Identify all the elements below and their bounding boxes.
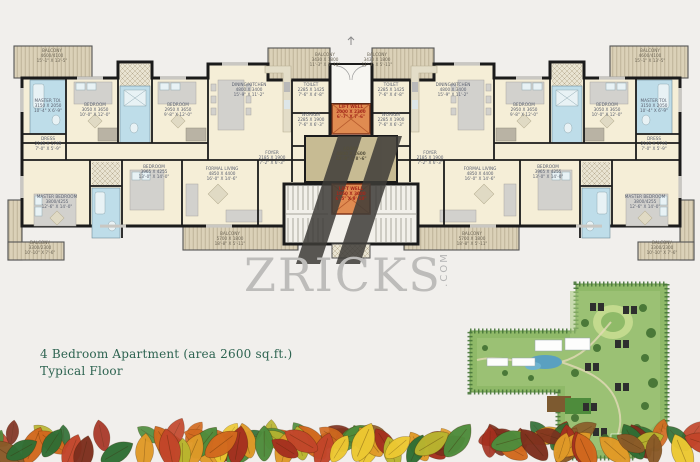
label-balcony-top-center: BALCONY3430 X 180011'-3" X 5'-11" <box>310 52 341 67</box>
label-bedroom-b-r: BEDROOM2950 X 36509'-8" X 12'-0" <box>510 102 538 117</box>
floor-plan: BALCONY4600/410015'-1" X 13'-5" MASTER T… <box>0 36 700 276</box>
label-formal-living-r: FORMAL LIVING4850 X 440016'-0" X 14'-6" <box>464 166 497 181</box>
label-bedroom-a-r: BEDROOM3050 X 365010'-0" X 12'-0" <box>592 102 623 117</box>
leaf-border <box>0 410 700 462</box>
label-bedroom-c: BEDROOM3965 X 425513'-0" X 14'-0" <box>139 164 170 179</box>
watermark-suffix: .COM <box>439 252 450 287</box>
label-master-toilet: MASTER TOI.3150 X 205010'-4" X 6'-9" <box>34 98 62 113</box>
watermark: ZRICKS .COM <box>244 252 442 298</box>
label-bedroom-b: BEDROOM2950 X 36509'-8" X 12'-0" <box>164 102 192 117</box>
label-dining-kitchen-r: DINING/KITCHEN4800 X 340015'-9" X 11'-2" <box>436 82 471 97</box>
watermark-brand: ZRICKS <box>244 248 442 302</box>
caption-line-1: 4 Bedroom Apartment (area 2600 sq.ft.) <box>40 346 292 363</box>
label-lift-well-top: LIFT WELL2000 X 23006'-7" X 7'-6" <box>336 104 366 119</box>
label-bedroom-c-r: BEDROOM3965 X 425513'-0" X 14'-0" <box>533 164 564 179</box>
label-formal-living: FORMAL LIVING4850 X 440016'-0" X 14'-6" <box>206 166 239 181</box>
label-dining-kitchen: DINING/KITCHEN4800 X 340015'-9" X 11'-2" <box>232 82 267 97</box>
label-lift-well-bottom: LIFT WELL1950 X 30006'-5" X 9'-10" <box>335 186 366 201</box>
entry-shaft <box>330 64 372 104</box>
north-marker <box>348 37 354 45</box>
autumn-leaves <box>0 414 700 462</box>
label-bedroom-a: BEDROOM3050 X 365010'-0" X 12'-0" <box>80 102 111 117</box>
page: BALCONY4600/410015'-1" X 13'-5" MASTER T… <box>0 0 700 462</box>
label-master-toilet-r: MASTER TOI.3150 X 205010'-4" X 6'-9" <box>640 98 668 113</box>
caption-line-2: Typical Floor <box>40 363 292 380</box>
core-labels: LIFT WELL2000 X 23006'-7" X 7'-6" LOBBY4… <box>335 104 366 201</box>
plan-caption: 4 Bedroom Apartment (area 2600 sq.ft.) T… <box>40 346 292 380</box>
